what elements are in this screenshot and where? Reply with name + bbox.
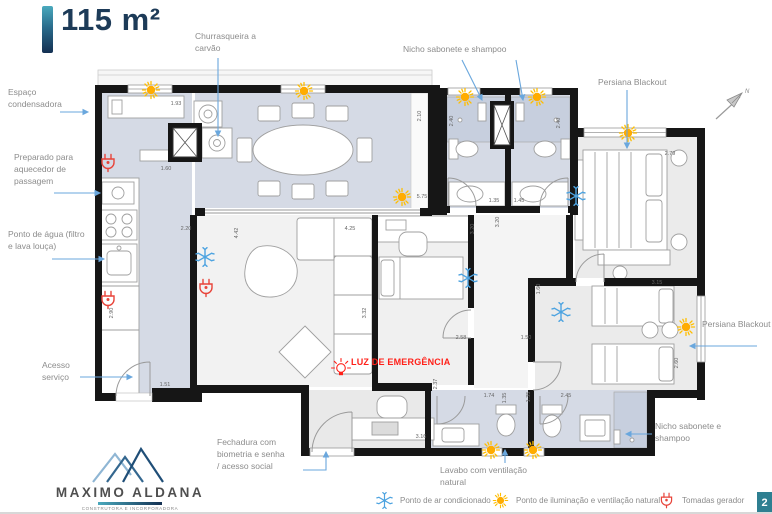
legend-item-sun: Ponto de iluminação e ventilação natural — [492, 492, 660, 509]
svg-text:2.20: 2.20 — [181, 226, 192, 232]
svg-text:1.35: 1.35 — [502, 393, 508, 404]
compass-icon: N — [716, 89, 750, 119]
svg-text:4.42: 4.42 — [234, 228, 240, 239]
svg-text:1.35: 1.35 — [526, 392, 532, 403]
svg-text:1.45: 1.45 — [514, 198, 525, 204]
mountains-icon — [85, 446, 175, 484]
emergency-light-label: LUZ DE EMERGÊNCIA — [329, 357, 450, 367]
snowflake-icon — [376, 492, 393, 509]
annotation-lavabo: Lavabo com ventilação natural — [440, 465, 527, 489]
svg-text:N: N — [745, 89, 750, 95]
company-tagline: CONSTRUTORA E INCORPORADORA — [30, 506, 230, 511]
legend-label: Ponto de iluminação e ventilação natural — [516, 496, 660, 505]
svg-text:3.15: 3.15 — [652, 280, 663, 286]
annotation-nicho-top: Nicho sabonete e shampoo — [403, 44, 507, 56]
svg-text:3.16: 3.16 — [416, 434, 427, 440]
page-title: 115 m² — [61, 2, 161, 38]
svg-text:3.20: 3.20 — [470, 224, 476, 235]
svg-text:3.32: 3.32 — [362, 308, 368, 319]
annotation-acesso-servico: Acesso serviço — [42, 360, 70, 384]
legend-label: Tomadas gerador — [682, 496, 744, 505]
svg-text:1.50: 1.50 — [521, 335, 532, 341]
annotation-espaco-condensadora: Espaço condensadora — [8, 87, 62, 111]
svg-text:1.60: 1.60 — [536, 284, 542, 295]
legend-label: Ponto de ar condicionado — [400, 496, 491, 505]
svg-text:2.60: 2.60 — [674, 358, 680, 369]
annotation-churrasqueira: Churrasqueira a carvão — [195, 31, 256, 55]
svg-text:4.25: 4.25 — [345, 226, 356, 232]
svg-text:1.60: 1.60 — [161, 166, 172, 172]
furniture-bedroom3 — [377, 216, 469, 299]
legend-item-plug: Tomadas gerador — [658, 492, 744, 509]
company-name: MAXIMO ALDANA — [30, 485, 230, 500]
svg-text:1.35: 1.35 — [489, 198, 500, 204]
logo-divider — [98, 502, 162, 505]
page-number-badge: 2 — [757, 492, 772, 514]
svg-text:2.58: 2.58 — [456, 335, 467, 341]
svg-text:2.90: 2.90 — [109, 308, 115, 319]
annotation-ponto-agua: Ponto de água (filtro e lava louça) — [8, 229, 85, 253]
company-logo: MAXIMO ALDANA CONSTRUTORA E INCORPORADOR… — [30, 446, 230, 511]
svg-text:5.75: 5.75 — [417, 194, 428, 200]
title-accent-bar — [42, 6, 53, 53]
svg-text:3.20: 3.20 — [495, 217, 501, 228]
annotation-persiana-right: Persiana Blackout — [702, 319, 771, 331]
annotation-aquecedor: Preparado para aquecedor de passagem — [14, 152, 73, 188]
annotation-persiana-top: Persiana Blackout — [598, 77, 667, 89]
plug-icon — [658, 492, 675, 509]
floor-plan-page: 1.93 1.60 2.20 4.42 2.90 1.51 4.25 3.32 … — [0, 0, 772, 514]
sun-icon — [492, 492, 509, 509]
svg-text:1.51: 1.51 — [160, 382, 171, 388]
svg-text:2.40: 2.40 — [449, 116, 455, 127]
annotation-nicho-bottom: Nicho sabonete e shampoo — [655, 421, 721, 445]
svg-text:1.93: 1.93 — [171, 101, 182, 107]
legend-item-ac: Ponto de ar condicionado — [376, 492, 491, 509]
svg-text:2.45: 2.45 — [561, 393, 572, 399]
svg-text:1.74: 1.74 — [484, 393, 495, 399]
svg-text:2.37: 2.37 — [433, 379, 439, 390]
svg-text:2.40: 2.40 — [556, 118, 562, 129]
svg-text:2.10: 2.10 — [417, 111, 423, 122]
svg-text:2.79: 2.79 — [665, 151, 676, 157]
